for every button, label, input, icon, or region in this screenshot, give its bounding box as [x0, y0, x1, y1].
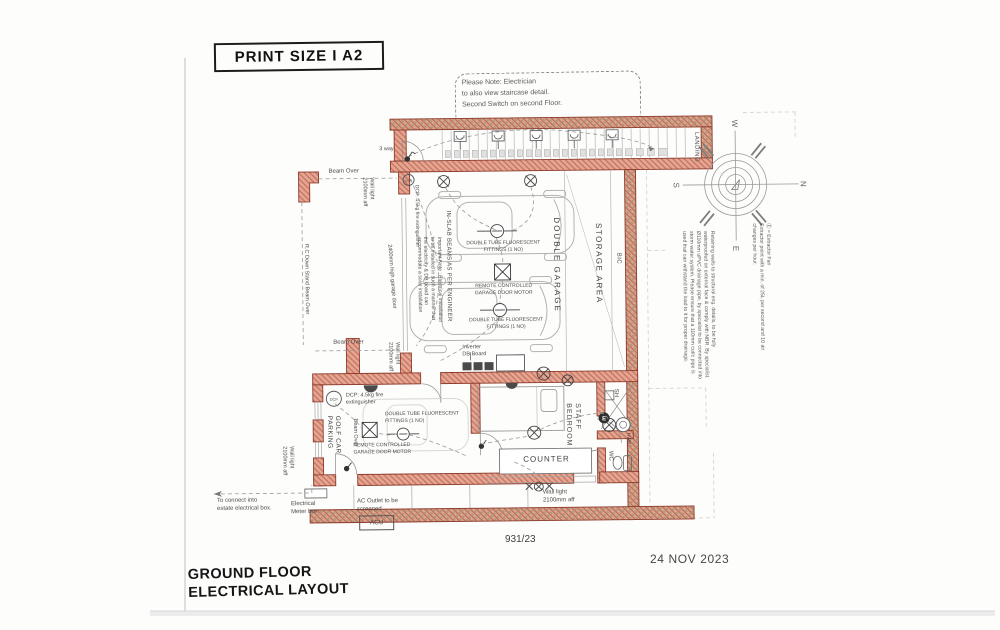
- inslab-beams-label: IN-SLAB BEAMS AS PER ENGINEER: [443, 211, 452, 322]
- floor-plan: E DCP DCP: [0, 0, 1000, 630]
- extractor-note: Ⓔ = Extractor Fan Extractor point with a…: [750, 223, 773, 413]
- plan-graphics: E DCP DCP: [0, 0, 1000, 630]
- wall-light-label-1: Wall light 2100mm aff: [360, 177, 375, 206]
- rc-beam-label: R.C Down Stand Beam Over: [302, 244, 310, 314]
- important-note-label: Important Note : Electrical installation…: [415, 237, 443, 359]
- drawing-number: 931/23: [505, 534, 536, 545]
- room-label-bic: BIC: [614, 253, 622, 265]
- inverter-label: Inverter DB Board: [462, 344, 486, 358]
- svg-text:W: W: [730, 120, 739, 128]
- room-label-staff-bedroom: STAFF BEDROOM: [563, 403, 581, 446]
- meter-box-icon: [305, 489, 327, 498]
- wall-light-label-bottom: Wall light 2100mm aff: [543, 488, 575, 505]
- room-label-wc: WC: [606, 451, 614, 461]
- wall-light-label-2: Wall light 2100mm aff: [385, 342, 400, 371]
- fluorescent-label-2: DOUBLE TUBE FLUORESCENT FITTINGS (1 NO): [460, 316, 552, 330]
- drawing-title: GROUND FLOOR ELECTRICAL LAYOUT: [188, 562, 350, 602]
- pendant-light-icons: [454, 130, 618, 150]
- svg-text:E: E: [602, 416, 606, 422]
- svg-text:DCP: DCP: [330, 397, 339, 402]
- ac-outlet-label: AC Outlet to be screened: [357, 497, 398, 514]
- date-stamp: 24 NOV 2023: [650, 552, 729, 566]
- beam-over-label-mid: Beam Over: [333, 339, 363, 347]
- estate-connect-label: To connect into estate electrical box.: [217, 496, 272, 513]
- meter-box-label: Electrical Meter box: [291, 500, 318, 517]
- room-label-double-garage: DOUBLE GARAGE: [551, 217, 562, 312]
- room-label-storage-area: STORAGE AREA: [593, 223, 604, 304]
- room-label-counter: COUNTER: [506, 454, 586, 465]
- dcp-label-golf: DCP: 4.5kg fire extinguisher: [346, 392, 383, 407]
- room-label-shower: SH: [611, 389, 619, 397]
- fluorescent-label-1: DOUBLE TUBE FLUORESCENT FITTINGS (1 NO): [457, 239, 549, 253]
- motor-label-garage: REMOTE CONTROLLED GARAGE DOOR MOTOR: [462, 283, 546, 297]
- scanned-drawing-page: PRINT SIZE I A2 Please Note: Electrician…: [0, 0, 1000, 630]
- wall-light-label-3: Wall light 2100mm aff: [280, 446, 295, 475]
- room-label-hwb: HWB: [625, 433, 632, 445]
- svg-text:N: N: [799, 181, 808, 187]
- room-label-landing: LANDING: [691, 132, 699, 162]
- motor-label-golf: REMOTE CONTROLLED GARAGE DOOR MOTOR: [353, 442, 411, 456]
- retaining-walls-note: Retaining walls to structural eng. detai…: [680, 231, 718, 519]
- svg-text:S: S: [672, 182, 681, 187]
- ceiling-light-icons: [438, 174, 617, 492]
- room-label-golf-car-parking: GOLF CAR PARKING: [324, 416, 341, 454]
- acu-box: ACU: [359, 515, 394, 530]
- fluorescent-label-golf: DOUBLE TUBE FLUORESCENT FITTINGS (1 NO): [385, 410, 459, 424]
- svg-text:E: E: [731, 246, 740, 251]
- beam-over-label-top: Beam Over: [328, 168, 358, 176]
- three-way-label: 3 way: [379, 146, 393, 153]
- fluorescent-icons: [385, 224, 521, 440]
- staircase: [408, 128, 685, 160]
